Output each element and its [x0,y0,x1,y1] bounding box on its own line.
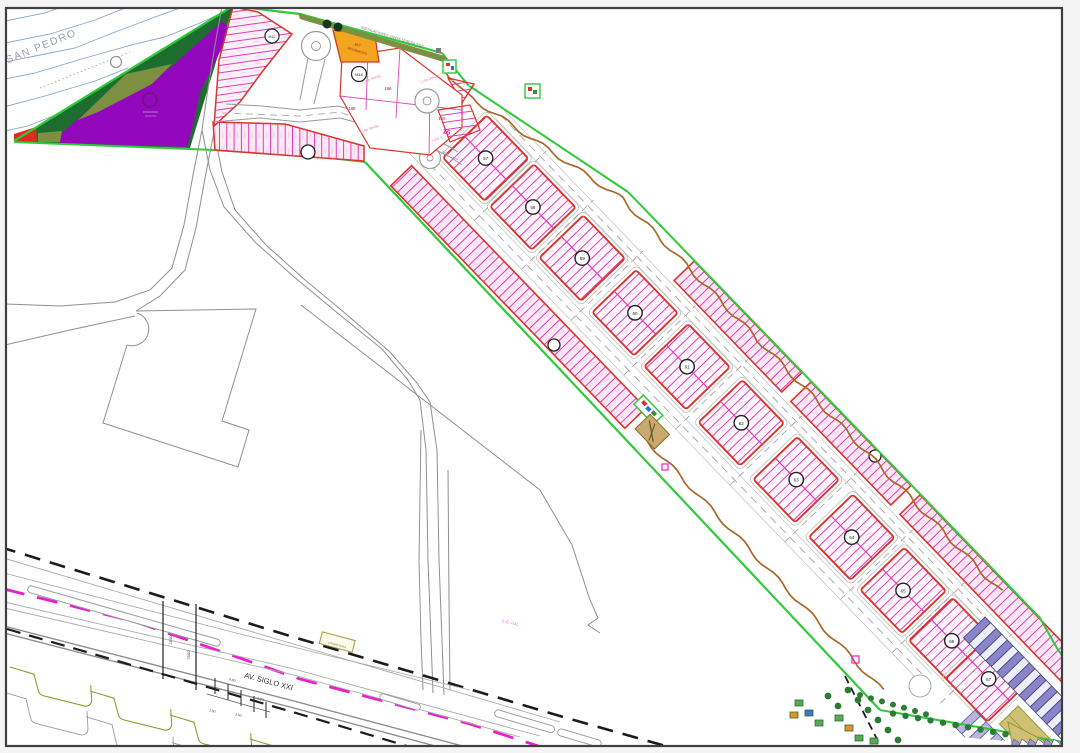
svg-text:66: 66 [949,639,955,644]
svg-text:63: 63 [794,478,800,483]
svg-text:61: 61 [685,365,691,370]
svg-text:57: 57 [483,156,489,161]
svg-text:67: 67 [986,677,992,682]
svg-text:58: 58 [530,205,536,210]
svg-text:59: 59 [580,256,586,261]
svg-text:64: 64 [849,535,855,540]
svg-text:62: 62 [739,421,745,426]
svg-text:166: 166 [385,86,393,91]
svg-text:M18: M18 [355,73,362,77]
svg-text:2500: 2500 [168,635,173,645]
svg-text:M12: M12 [269,35,276,39]
svg-text:168: 168 [349,106,357,111]
svg-text:65: 65 [901,588,907,593]
svg-text:60: 60 [632,311,638,316]
svg-text:2500: 2500 [186,650,191,660]
